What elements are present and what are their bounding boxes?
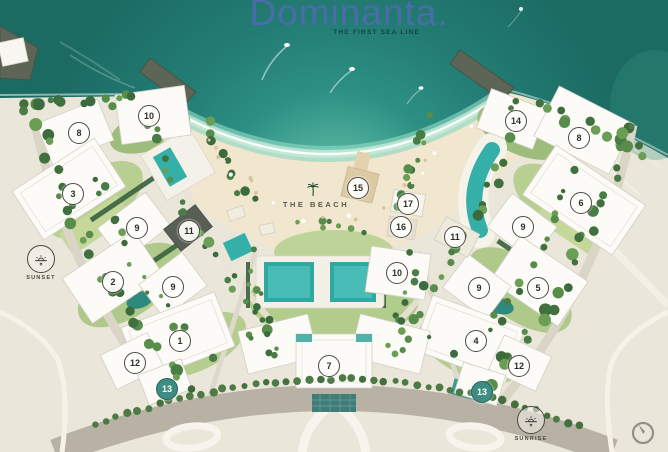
building-marker-1[interactable]: 1 (169, 330, 191, 352)
building-marker-16[interactable]: 16 (390, 216, 412, 238)
building-marker-9[interactable]: 9 (512, 216, 534, 238)
building-marker-15[interactable]: 15 (347, 177, 369, 199)
compass-icon (629, 419, 657, 452)
building-marker-13[interactable]: 13 (156, 378, 178, 400)
building-marker-10[interactable]: 10 (138, 105, 160, 127)
site-plan: Dominanta. THE FIRST SEA LINE THE BEACH … (0, 0, 668, 452)
building-marker-5[interactable]: 5 (527, 277, 549, 299)
building-marker-17[interactable]: 17 (397, 193, 419, 215)
building-marker-3[interactable]: 3 (62, 183, 84, 205)
building-marker-13[interactable]: 13 (471, 381, 493, 403)
building-marker-7[interactable]: 7 (318, 355, 340, 377)
sunrise-marker: SUNRISE (501, 406, 561, 442)
site-plan-map (0, 0, 668, 452)
building-marker-11[interactable]: 11 (178, 220, 200, 242)
sunrise-label: SUNRISE (501, 436, 561, 442)
brand-tagline: THE FIRST SEA LINE (0, 29, 420, 36)
building-marker-8[interactable]: 8 (68, 122, 90, 144)
sunrise-icon (517, 406, 545, 434)
building-marker-9[interactable]: 9 (468, 277, 490, 299)
sunset-icon (27, 245, 55, 273)
palm-icon (306, 181, 320, 197)
building-marker-10[interactable]: 10 (386, 262, 408, 284)
building-marker-2[interactable]: 2 (102, 271, 124, 293)
building-marker-12[interactable]: 12 (508, 355, 530, 377)
building-marker-14[interactable]: 14 (505, 110, 527, 132)
building-marker-9[interactable]: 9 (126, 217, 148, 239)
building-marker-8[interactable]: 8 (568, 127, 590, 149)
corner-building (0, 38, 28, 67)
beach-label: THE BEACH (256, 200, 376, 209)
sunset-marker: SUNSET (11, 245, 71, 281)
building-marker-6[interactable]: 6 (570, 192, 592, 214)
building-marker-12[interactable]: 12 (124, 352, 146, 374)
building-marker-9[interactable]: 9 (162, 276, 184, 298)
building-marker-11[interactable]: 11 (444, 226, 466, 248)
sunset-label: SUNSET (11, 275, 71, 281)
building-marker-4[interactable]: 4 (465, 330, 487, 352)
